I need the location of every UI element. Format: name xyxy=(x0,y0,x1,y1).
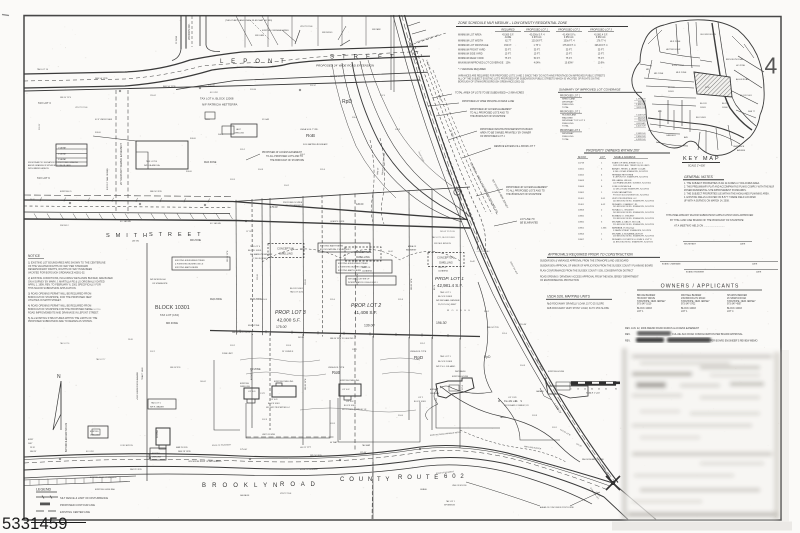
svg-text:35 FT.: 35 FT. xyxy=(505,50,512,52)
svg-text:N/F RICHARD J STANLEY, JR: N/F RICHARD J STANLEY, JR xyxy=(504,404,529,407)
svg-text:EASEMENT: EASEMENT xyxy=(406,249,417,252)
svg-text:259 BROOKLYN RD. STANHOPE, NJ: 259 BROOKLYN RD. STANHOPE, NJ 07874 xyxy=(613,235,655,238)
svg-text:CLEARING: CLEARING xyxy=(362,270,373,273)
svg-text:TAX LOT 1: TAX LOT 1 xyxy=(440,355,452,358)
svg-text:TOTAL: TOTAL xyxy=(562,106,570,109)
svg-text:DWELLING: DWELLING xyxy=(279,252,293,256)
svg-text:N86 56' 39"E 204.06': N86 56' 39"E 204.06' xyxy=(232,332,251,334)
svg-text:TAX LOT 1: TAX LOT 1 xyxy=(446,500,455,503)
svg-text:X03.00: X03.00 xyxy=(95,132,101,134)
svg-text:N86 56'39"E: N86 56'39"E xyxy=(170,367,181,369)
svg-text:EXISTING OVERHEAD WIRES: EXISTING OVERHEAD WIRES xyxy=(262,29,289,32)
svg-text:BLK: BLK xyxy=(658,111,662,113)
svg-text:PROPOSED 40' ACCESS EASEMENT: PROPOSED 40' ACCESS EASEMENT xyxy=(262,151,302,154)
svg-text:X08.8: X08.8 xyxy=(395,129,400,131)
svg-text:TAX LOT 5: TAX LOT 5 xyxy=(151,402,162,405)
svg-text:0.95± AC.: 0.95± AC. xyxy=(564,36,575,39)
svg-text:X04.1: X04.1 xyxy=(352,349,357,351)
svg-text:SCALE 1"=300': SCALE 1"=300' xyxy=(688,165,706,168)
svg-text:TAX LOT 9: TAX LOT 9 xyxy=(37,176,50,180)
svg-text:MINIMUM SIDE YARD: MINIMUM SIDE YARD xyxy=(458,53,483,56)
svg-text:WETLANDS: WETLANDS xyxy=(455,370,466,373)
svg-text:REV.: REV. xyxy=(625,340,631,343)
svg-text:LIMIT OF: LIMIT OF xyxy=(438,267,447,269)
svg-text:MR ZONE: MR ZONE xyxy=(250,369,261,371)
svg-text:175.00 FT. 4: 175.00 FT. 4 xyxy=(563,45,577,47)
svg-text:& FORESTED BUSHES ON LN: & FORESTED BUSHES ON LN xyxy=(175,264,204,266)
svg-text:4. EXISTING WELLS LOCATED ON: 4. EXISTING WELLS LOCATED ON B-577 7 WER… xyxy=(684,196,756,199)
svg-text:BATUM FILED MAP NO 939: BATUM FILED MAP NO 939 xyxy=(65,422,68,452)
svg-text:EXISTING EVERGREEN TREES: EXISTING EVERGREEN TREES xyxy=(338,263,368,265)
svg-text:PO BOX 302 LEDGEWOOD, NJ 0785: PO BOX 302 LEDGEWOOD, NJ 07852 xyxy=(613,194,650,196)
svg-text:ROAD OPENING / DRIVEWAY ACCESS: ROAD OPENING / DRIVEWAY ACCESS APPROVAL … xyxy=(540,276,639,279)
svg-text:EXISTING: EXISTING xyxy=(240,383,249,385)
svg-text:243 BROOKLYN RD. STANHOPE, NJ: 243 BROOKLYN RD. STANHOPE, NJ 07874 xyxy=(613,199,655,202)
svg-text:N/F H. WAGER: N/F H. WAGER xyxy=(150,406,164,409)
svg-text:MINIMUM LOT AREA: MINIMUM LOT AREA xyxy=(458,34,482,37)
svg-text:DRIVEWAY TOP LOT 3: DRIVEWAY TOP LOT 3 xyxy=(562,119,586,122)
svg-text:RAIL MONUMENT FOUND: RAIL MONUMENT FOUND xyxy=(582,458,605,461)
svg-text:PROPOSED LOT 1: PROPOSED LOT 1 xyxy=(526,29,548,32)
svg-text:OWNERS / APPLICANTS: OWNERS / APPLICANTS xyxy=(661,284,740,290)
svg-text:4: 4 xyxy=(765,53,778,79)
svg-text:SUBDIVISION APPROVAL OF MINOR: SUBDIVISION APPROVAL OF MINOR OF APPLICA… xyxy=(540,265,653,268)
svg-text:TAX LOT 1: TAX LOT 1 xyxy=(440,291,452,294)
svg-text:OF STANHOPE: OF STANHOPE xyxy=(152,282,168,285)
svg-text:1 STY: 1 STY xyxy=(260,393,266,395)
svg-text:REQUIRED: REQUIRED xyxy=(501,29,514,32)
svg-text:LIMIT OF WDB: LIMIT OF WDB xyxy=(262,434,276,436)
svg-text:973-347-1019: 973-347-1019 xyxy=(637,304,652,306)
svg-text:THIS PRELIMINARY MAJOR SUBD: THIS PRELIMINARY MAJOR SUBDIVISION APPLI… xyxy=(666,214,753,217)
svg-text:10001: 10001 xyxy=(578,168,585,170)
svg-text:75 FT.: 75 FT. xyxy=(566,58,573,60)
svg-text:ALL OF THE SUBJECT EXISTING LO: ALL OF THE SUBJECT EXISTING LOTS PROPOSE… xyxy=(458,78,600,81)
svg-text:X03.2: X03.2 xyxy=(230,345,235,347)
svg-text:BLOCK 10903: BLOCK 10903 xyxy=(438,296,453,298)
svg-text:ABOVE GRADING IF WITHIN EX. 12: ABOVE GRADING IF WITHIN EX. 12 IN OR LES… xyxy=(28,164,71,167)
svg-text:175.00': 175.00' xyxy=(276,325,287,329)
svg-text:TOTAL: TOTAL xyxy=(562,125,570,128)
svg-text:EXISTING DWELLING: EXISTING DWELLING xyxy=(340,380,360,382)
svg-text:50.00': 50.00' xyxy=(388,251,394,253)
svg-text:35 FT.: 35 FT. xyxy=(566,50,573,52)
svg-text:MAR 29 2015: MAR 29 2015 xyxy=(176,446,188,449)
svg-text:TOTAL AREA OF LOTS TO BE: TOTAL AREA OF LOTS TO BE SUBDIVIDED = 2.… xyxy=(455,92,524,95)
svg-text:TRACT LINE: TRACT LINE xyxy=(141,367,144,380)
svg-text:245 BROOKLYN RD. STANHOPE, NJ: 245 BROOKLYN RD. STANHOPE, NJ 07874 xyxy=(613,205,655,208)
svg-text:20: 20 xyxy=(584,388,586,390)
svg-text:30: 30 xyxy=(591,388,593,390)
svg-text:AVENUE: AVENUE xyxy=(737,149,746,152)
svg-text:CLEARING: CLEARING xyxy=(438,270,449,273)
svg-text:HETTER BOHR: HETTER BOHR xyxy=(666,49,681,51)
svg-text:BLOCK 10301: BLOCK 10301 xyxy=(155,305,190,311)
svg-text:3 SA WAY: 3 SA WAY xyxy=(58,158,67,161)
svg-text:15 FT.: 15 FT. xyxy=(598,54,605,56)
svg-text:DWY: DWY xyxy=(28,443,33,445)
svg-text:11401: 11401 xyxy=(578,198,585,200)
svg-text:TO ALL PROPOSED LOTS AND TO: TO ALL PROPOSED LOTS AND TO xyxy=(470,112,509,115)
svg-text:75 FT.: 75 FT. xyxy=(598,58,605,60)
svg-text:EXISTING: EXISTING xyxy=(152,453,161,455)
svg-text:PROPOSED LOT 3: PROPOSED LOT 3 xyxy=(590,29,612,32)
svg-text:EXISTING: EXISTING xyxy=(90,431,99,433)
svg-text:239 BROOKLYN ROAD: 239 BROOKLYN ROAD xyxy=(681,297,706,300)
svg-text:SHED/ LANE: SHED/ LANE xyxy=(562,98,576,101)
svg-text:TAX LOT 4: TAX LOT 4 xyxy=(250,245,261,248)
svg-text:WITH WATER HEREON: WITH WATER HEREON xyxy=(28,167,49,170)
svg-text:80: 80 xyxy=(615,388,617,390)
svg-text:VACATED FOR BOROUGH ORDINANCE: VACATED FOR BOROUGH ORDINANCE #2001-02. xyxy=(28,272,86,275)
svg-text:42,000 S.F.: 42,000 S.F. xyxy=(277,318,301,323)
svg-text:L E P O N T: L E P O N T xyxy=(220,59,287,65)
svg-text:N86 50' 29"E: N86 50' 29"E xyxy=(330,76,343,78)
svg-text:USDA SOIL TYPE: USDA SOIL TYPE xyxy=(300,128,318,131)
svg-text:PLAN CONFORMANCE FROM THE SUSS: PLAN CONFORMANCE FROM THE SUSSEX COUNTY … xyxy=(540,270,634,273)
svg-text:BRUCE BENDER: BRUCE BENDER xyxy=(637,295,656,297)
svg-text:X07.4: X07.4 xyxy=(380,95,385,97)
svg-text:* = VARIANCE REQUIRED: * = VARIANCE REQUIRED xyxy=(458,68,486,71)
svg-text:WALKWAY: WALKWAY xyxy=(562,116,573,119)
svg-text:BLOCK 10301: BLOCK 10301 xyxy=(290,288,304,290)
svg-text:41,408 S.F.: 41,408 S.F. xyxy=(354,310,377,315)
svg-text:RoB ROCKAWAY VERY STONY LOAM: RoB ROCKAWAY VERY STONY LOAM, 3A TO 15% … xyxy=(547,307,609,310)
svg-text:EX. DWY: EX. DWY xyxy=(210,92,219,94)
svg-text:N84 29' 39"E: N84 29' 39"E xyxy=(178,451,191,453)
svg-text:R O U T E: R O U T E xyxy=(398,475,440,481)
svg-text:10003: 10003 xyxy=(578,180,585,182)
svg-text:40: 40 xyxy=(598,388,600,390)
svg-text:PROPOSED INFILTRATION/DETENTIO: PROPOSED INFILTRATION/DETENTION BASIN xyxy=(480,128,533,131)
svg-text:N/F KLEIN: N/F KLEIN xyxy=(255,35,265,37)
svg-text:X04.8: X04.8 xyxy=(258,169,263,171)
svg-text:W O O D S: W O O D S xyxy=(498,400,523,403)
svg-text:GAS VALVE: GAS VALVE xyxy=(240,494,250,497)
svg-text:REV.: REV. xyxy=(625,333,631,336)
svg-text:100.00': 100.00' xyxy=(200,381,207,383)
svg-text:LOT 1 R/S: LOT 1 R/S xyxy=(508,397,517,399)
svg-text:X05.4: X05.4 xyxy=(502,333,507,335)
svg-text:RpD: RpD xyxy=(342,99,352,105)
svg-text:10903: 10903 xyxy=(668,91,674,93)
svg-text:SUMMARY OF IMPROVED LOT CO: SUMMARY OF IMPROVED LOT COVERAGE xyxy=(559,88,621,92)
svg-text:N84 29' 39"E: N84 29' 39"E xyxy=(300,447,312,449)
svg-text:MLR ZONE: MLR ZONE xyxy=(250,299,262,301)
svg-text:N86 56' 39"E: N86 56' 39"E xyxy=(150,191,162,193)
svg-text:SECRETARY: SECRETARY xyxy=(684,243,697,246)
svg-text:X03.8: X03.8 xyxy=(532,415,537,417)
svg-text:35 FT.: 35 FT. xyxy=(598,50,605,52)
svg-text:EXISTING EARTH BERM: EXISTING EARTH BERM xyxy=(338,269,361,272)
svg-text:MR: MR xyxy=(646,69,650,71)
svg-text:TAX LOT 1, BLOCK 10903: TAX LOT 1, BLOCK 10903 xyxy=(432,236,455,239)
svg-text:N86 50' 29"E: N86 50' 29"E xyxy=(60,97,72,99)
svg-text:ROAD IMPROVEMENTS AND DRAINAGE: ROAD IMPROVEMENTS AND DRAINAGE IN LEPONT… xyxy=(28,311,99,314)
svg-text:0.970 AC.: 0.970 AC. xyxy=(532,36,543,39)
svg-text:TAX LOT (1X2): TAX LOT (1X2) xyxy=(290,291,304,294)
svg-text:S T R E E T: S T R E E T xyxy=(149,232,203,238)
svg-text:EXISTING EVERGREEN TREES: EXISTING EVERGREEN TREES xyxy=(175,260,205,262)
svg-text:MR ZONE: MR ZONE xyxy=(654,73,664,75)
svg-text:PROP. LOT 1: PROP. LOT 1 xyxy=(435,276,464,282)
svg-text:35 FT.: 35 FT. xyxy=(534,50,541,52)
svg-text:TAX LOT 10: TAX LOT 10 xyxy=(90,308,100,311)
svg-text:TO ALL PROPOSED LOTS AND TO: TO ALL PROPOSED LOTS AND TO xyxy=(506,190,545,193)
svg-text:10905: 10905 xyxy=(578,222,585,224)
svg-text:201.64' TO P.O.B.: 201.64' TO P.O.B. xyxy=(440,231,456,233)
svg-text:X04.0: X04.0 xyxy=(398,415,403,417)
svg-text:6 DELL ROAD STANHOPE, NJ 0787: 6 DELL ROAD STANHOPE, NJ 07874 xyxy=(613,170,649,173)
svg-text:LOT: LOT xyxy=(600,156,605,159)
svg-text:EXIST. 8" SAN. SEWER: EXIST. 8" SAN. SEWER xyxy=(106,168,109,190)
svg-text:BLOCK 10305: BLOCK 10305 xyxy=(438,361,453,363)
svg-text:150 FT.: 150 FT. xyxy=(504,45,512,47)
svg-text:DRIVEWAY: DRIVEWAY xyxy=(562,100,574,103)
svg-text:KEY MAP: KEY MAP xyxy=(683,156,720,162)
svg-text:AVE: AVE xyxy=(684,136,689,139)
svg-text:973-347-0702: 973-347-0702 xyxy=(681,304,696,306)
svg-text:24 BROOKLYN RD. STANHOPE, NJ 0: 24 BROOKLYN RD. STANHOPE, NJ 07874 xyxy=(613,241,654,244)
svg-text:DWELLING: DWELLING xyxy=(562,136,574,138)
svg-text:B17.4: B17.4 xyxy=(434,285,436,290)
svg-text:REMOVE EXCESS FILL FROM LO: REMOVE EXCESS FILL FROM LOT 7 xyxy=(494,145,536,148)
svg-text:C O U N T Y: C O U N T Y xyxy=(340,477,391,483)
svg-text:15" RCP: 15" RCP xyxy=(246,231,254,233)
svg-text:X04.8: X04.8 xyxy=(520,365,525,367)
svg-text:25,707.4 SQ FEET: 25,707.4 SQ FEET xyxy=(438,304,457,306)
svg-text:UTILITY POLE: UTILITY POLE xyxy=(300,26,313,28)
svg-text:42,981.4 S.F.: 42,981.4 S.F. xyxy=(437,283,463,288)
svg-text:TAX MAP: TAX MAP xyxy=(362,444,371,447)
svg-text:PROPOSED 40' ACCESS EASEMENT: PROPOSED 40' ACCESS EASEMENT xyxy=(506,186,548,189)
svg-text:OF PROPOSED LOT 1: OF PROPOSED LOT 1 xyxy=(480,135,505,138)
svg-text:INTERPRETATION #1504-02-0002.1: INTERPRETATION #1504-02-0002.1 xyxy=(348,281,378,284)
svg-text:DATE: DATE xyxy=(756,271,762,274)
svg-text:ZONE LIMIT: ZONE LIMIT xyxy=(222,353,233,355)
svg-text:SOIL MAPPING BOUNDARY: SOIL MAPPING BOUNDARY xyxy=(303,143,328,146)
svg-text:75 FT.: 75 FT. xyxy=(505,58,512,60)
svg-text:N/F MICHAEL BENDER: N/F MICHAEL BENDER xyxy=(436,299,460,302)
svg-text:1 75' 4: 1 75' 4 xyxy=(534,45,542,47)
svg-text:PROPOSED 50' WIDE: PROPOSED 50' WIDE xyxy=(283,202,303,204)
svg-text:X03.1: X03.1 xyxy=(552,427,557,429)
svg-text:FROM PEAK PVC ELEVATION TO PRO: FROM PEAK PVC ELEVATION TO PROPOSED GRAD… xyxy=(28,161,79,164)
svg-text:ZONED RESIDENTIAL SITE IMPROVE: ZONED RESIDENTIAL SITE IMPROVEMENT STAND… xyxy=(684,189,747,192)
svg-text:0.96± AC.: 0.96± AC. xyxy=(596,36,607,39)
svg-text:10.9%: 10.9% xyxy=(598,63,605,65)
svg-text:N03 03' 30"W: N03 03' 30"W xyxy=(305,378,307,390)
svg-text:10719: 10719 xyxy=(578,163,585,165)
svg-text:CONCEPTUAL: CONCEPTUAL xyxy=(437,256,455,260)
svg-text:N/F LIA MEOLA: N/F LIA MEOLA xyxy=(144,164,160,167)
svg-text:40' WAY: 40' WAY xyxy=(330,441,338,444)
svg-text:X06.2: X06.2 xyxy=(484,311,489,313)
svg-text:MLR ZONE: MLR ZONE xyxy=(676,72,687,74)
svg-text:X02.8: X02.8 xyxy=(262,419,267,421)
svg-text:STANHOPE, NEW JERSEY: STANHOPE, NEW JERSEY xyxy=(637,300,666,303)
svg-text:EDGE OF PAVEMENT: EDGE OF PAVEMENT xyxy=(300,468,319,471)
svg-text:BLOCK 10903: BLOCK 10903 xyxy=(681,308,697,310)
svg-text:TAX LOT A, BLOCK 12008: TAX LOT A, BLOCK 12008 xyxy=(200,97,234,101)
svg-text:B R O O K L Y N: B R O O K L Y N xyxy=(202,483,280,489)
svg-text:EXISTING DWELLING: EXISTING DWELLING xyxy=(274,381,294,383)
svg-text:MAXIMUM IMPROVED LOT COVERAGE: MAXIMUM IMPROVED LOT COVERAGE xyxy=(458,62,504,65)
svg-text:400.00': 400.00' xyxy=(208,85,216,87)
svg-text:TAX LOT B: TAX LOT B xyxy=(146,160,158,163)
svg-text:BLOCK 10301: BLOCK 10301 xyxy=(248,250,262,252)
svg-text:LINE OF WOODS: LINE OF WOODS xyxy=(452,485,467,487)
svg-text:RoB: RoB xyxy=(332,370,340,375)
svg-text:DWELLING: DWELLING xyxy=(562,123,574,125)
svg-text:DATE: DATE xyxy=(740,243,746,246)
svg-text:SITE: SITE xyxy=(705,87,710,89)
svg-text:TAX LOT 7: TAX LOT 7 xyxy=(96,358,105,361)
svg-text:BLOCK 10301: BLOCK 10301 xyxy=(268,403,280,405)
svg-text:X02.47: X02.47 xyxy=(310,85,316,87)
svg-text:60: 60 xyxy=(605,388,607,390)
svg-text:255 BROOKLYN RD. STANHOPE, NJ: 255 BROOKLYN RD. STANHOPE, NJ 07874 xyxy=(613,223,655,226)
svg-text:2 SA WAY: 2 SA WAY xyxy=(58,153,67,156)
svg-text:X03.00: X03.00 xyxy=(250,89,256,91)
svg-text:±518 SUBDIVISION AWARD: ±518 SUBDIVISION AWARD xyxy=(136,372,139,400)
svg-text:10905: 10905 xyxy=(578,216,585,218)
svg-text:S03 23': S03 23' xyxy=(39,123,41,130)
svg-text:WOODS DR.: WOODS DR. xyxy=(187,23,191,40)
svg-text:BLK 10905: BLK 10905 xyxy=(696,117,707,119)
svg-text:EX. DWY: EX. DWY xyxy=(86,451,95,453)
svg-text:BLOCK: BLOCK xyxy=(700,103,707,105)
svg-text:EXISTING EARTH BERM: EXISTING EARTH BERM xyxy=(175,266,198,269)
svg-text:OLD BROOKLYN: OLD BROOKLYN xyxy=(700,34,716,36)
svg-text:BLOCK 1001: BLOCK 1001 xyxy=(740,95,753,97)
svg-text:X06.6: X06.6 xyxy=(352,117,357,119)
svg-text:BLOCK: BLOCK xyxy=(722,103,729,105)
svg-text:X05.2: X05.2 xyxy=(420,343,425,345)
svg-text:DATE: DATE xyxy=(752,263,758,266)
svg-text:N84 29': N84 29' xyxy=(30,451,37,453)
svg-text:GARAGE: GARAGE xyxy=(536,390,544,393)
svg-text:S T R E E T: S T R E E T xyxy=(330,55,397,61)
svg-text:DWELLING: DWELLING xyxy=(234,133,244,135)
svg-text:NOTICE: NOTICE xyxy=(28,254,40,258)
svg-text:120.00 FT.: 120.00 FT. xyxy=(532,41,543,43)
svg-text:BOROUGH OF STANHOPE BOROUGH OR: BOROUGH OF STANHOPE BOROUGH ORDINANCE (2… xyxy=(458,81,525,84)
svg-text:N86 56' 39"E TO DELETED: N86 56' 39"E TO DELETED xyxy=(330,338,354,340)
svg-text:USDA SOIL TYPE: USDA SOIL TYPE xyxy=(328,366,345,369)
svg-text:BLOCK 10903: BLOCK 10903 xyxy=(637,308,653,310)
svg-text:15%: 15% xyxy=(506,63,511,65)
svg-text:RpD ROCKAWAY GRAVELLY LOAM,: RpD ROCKAWAY GRAVELLY LOAM, 15 TO 25 SLO… xyxy=(547,303,604,306)
svg-text:CUL-DE-SAC ROAD CONFIGURATIO: CUL-DE-SAC ROAD CONFIGURATION PER BOARD … xyxy=(672,333,743,336)
svg-text:5 DAWN STREET STANHOPE, NJ 07: 5 DAWN STREET STANHOPE, NJ 07874 xyxy=(613,229,652,232)
svg-text:10 DELL ROAD STANHOPE, NJ 0787: 10 DELL ROAD STANHOPE, NJ 07874 xyxy=(613,188,650,191)
svg-text:UTILITY POLE: UTILITY POLE xyxy=(75,107,88,109)
svg-text:BOARD CHAIRMAN: BOARD CHAIRMAN xyxy=(662,263,681,266)
svg-text:DWELLING: DWELLING xyxy=(152,457,162,459)
svg-text:1.366: 1.366 xyxy=(601,227,607,229)
svg-text:DRIVEWAY: DRIVEWAY xyxy=(430,392,440,395)
svg-text:DWELLING: DWELLING xyxy=(356,255,370,259)
svg-text:(THIS PLAT/PLANS USED FILED MA: (THIS PLAT/PLANS USED FILED MAP NO 939) xyxy=(225,19,272,22)
svg-text:S M I T H: S M I T H xyxy=(106,233,149,239)
svg-text:X04.4: X04.4 xyxy=(262,299,267,301)
svg-text:SUBDIVISION & VARIANCE APPROVA: SUBDIVISION & VARIANCE APPROVAL FROM THE… xyxy=(540,260,629,263)
svg-text:10004: 10004 xyxy=(578,186,585,188)
svg-text:STANHOPE, NEW JERSEY: STANHOPE, NEW JERSEY xyxy=(681,300,710,303)
svg-text:VARIANCES ARE REQUIRED FOR PRO: VARIANCES ARE REQUIRED FOR PROPOSED LOTS… xyxy=(458,75,605,78)
svg-text:FR GAR: FR GAR xyxy=(262,118,270,121)
svg-text:B.CM /10904: B.CM /10904 xyxy=(672,65,685,67)
svg-text:UTILITY POLE: UTILITY POLE xyxy=(280,493,292,495)
svg-text:N/F PAUL BENSON: N/F PAUL BENSON xyxy=(434,242,451,245)
svg-text:EXISTING HOUSE: EXISTING HOUSE xyxy=(452,376,469,378)
svg-text:LOT 4.02: LOT 4.02 xyxy=(342,389,349,391)
svg-text:MR ZONE: MR ZONE xyxy=(190,239,201,242)
svg-text:ALLEN ROAD: ALLEN ROAD xyxy=(736,78,749,81)
svg-text:BLOCK: BLOCK xyxy=(578,156,587,159)
svg-text:STANHOPE, NEW JERSEY: STANHOPE, NEW JERSEY xyxy=(727,300,756,303)
svg-text:X03.6: X03.6 xyxy=(286,345,291,347)
svg-text:LOT LINE TO: LOT LINE TO xyxy=(520,218,535,221)
svg-text:223.00: 223.00 xyxy=(305,279,307,285)
svg-text:X06.1: X06.1 xyxy=(300,154,305,156)
svg-text:REV. JAN. 22, 2009 AMEND R: REV. JAN. 22, 2009 AMEND ROAD RADIUS & A… xyxy=(625,327,700,330)
svg-text:MLR ZONE: MLR ZONE xyxy=(248,325,260,327)
svg-text:175.00': 175.00' xyxy=(240,449,248,451)
svg-text:EX. SAN MH: EX. SAN MH xyxy=(120,220,132,223)
svg-text:MINIMUM LOT WIDTH: MINIMUM LOT WIDTH xyxy=(458,40,483,43)
svg-text:PROPOSED 24' WIDE PRIVATE: PROPOSED 24' WIDE PRIVATE ACCESS LANE xyxy=(462,100,515,103)
svg-text:15 FT.: 15 FT. xyxy=(566,54,573,56)
svg-text:PROPOSED LOT 2: PROPOSED LOT 2 xyxy=(558,29,580,32)
svg-text:EXISTING EDGE OF PAVEMENT: EXISTING EDGE OF PAVEMENT xyxy=(90,476,118,479)
svg-text:(IF WITH A SURVEY) ON MARCH 14: (IF WITH A SURVEY) ON MARCH 14, 2008. xyxy=(684,200,730,203)
svg-text:BOARD ENGINEER: BOARD ENGINEER xyxy=(686,271,705,274)
svg-text:R=40': R=40' xyxy=(470,261,476,263)
svg-text:973-347-4567: 973-347-4567 xyxy=(727,304,742,306)
svg-text:HICKORY DRIVE: HICKORY DRIVE xyxy=(637,298,656,300)
svg-text:10904: 10904 xyxy=(578,233,585,235)
svg-text:LOT 2: LOT 2 xyxy=(418,397,423,399)
svg-text:MLR ZONE: MLR ZONE xyxy=(670,41,681,43)
svg-text:1035 PKWY AVE. TRENTON, NJ 086: 1035 PKWY AVE. TRENTON, NJ 08625 xyxy=(613,164,650,167)
svg-text:EXISTING GUIDE RAIL: EXISTING GUIDE RAIL xyxy=(95,488,115,491)
svg-text:10.63%*: 10.63%* xyxy=(565,63,574,65)
svg-text:10901: 10901 xyxy=(578,227,585,229)
svg-text:29 20': 29 20' xyxy=(30,447,36,449)
svg-text:N/F BENSON: N/F BENSON xyxy=(444,505,456,507)
svg-text:BROOKS NATURAL 5' HT AND BUILT: BROOKS NATURAL 5' HT AND BUILT xyxy=(320,248,352,251)
svg-text:AREA TO BE OWNED PRIVATELY BY: AREA TO BE OWNED PRIVATELY BY OWNER xyxy=(479,132,531,135)
svg-text:SCALE 1"=40': SCALE 1"=40' xyxy=(586,392,600,395)
svg-text:LOT 4.02: LOT 4.02 xyxy=(346,401,353,403)
svg-text:THIS MAJOR SUBDIVISION APPLICA: THIS MAJOR SUBDIVISION APPLICATION. xyxy=(28,287,77,290)
svg-text:X05.8: X05.8 xyxy=(398,299,403,301)
svg-text:LOT 4: LOT 4 xyxy=(727,311,734,313)
svg-text:GRANITE CURB: GRANITE CURB xyxy=(330,220,345,223)
svg-text:X02.2: X02.2 xyxy=(150,351,155,353)
svg-text:AT A MEETING HELD ON ....: AT A MEETING HELD ON ...................… xyxy=(673,225,725,228)
svg-text:LAWRENCE: LAWRENCE xyxy=(733,145,745,148)
svg-text:50' ROW: 50' ROW xyxy=(176,36,178,44)
svg-text:EXISTING EARTH BERM: EXISTING EARTH BERM xyxy=(320,245,343,248)
svg-text:5331459: 5331459 xyxy=(2,515,68,533)
svg-text:GRAVEL: GRAVEL xyxy=(420,488,427,491)
svg-text:100 FRANKLIN AVE. SUSSEX, NJ 0: 100 FRANKLIN AVE. SUSSEX, NJ 07461 xyxy=(613,182,652,185)
svg-text:10301: 10301 xyxy=(578,192,585,194)
svg-text:10903: 10903 xyxy=(700,107,706,109)
